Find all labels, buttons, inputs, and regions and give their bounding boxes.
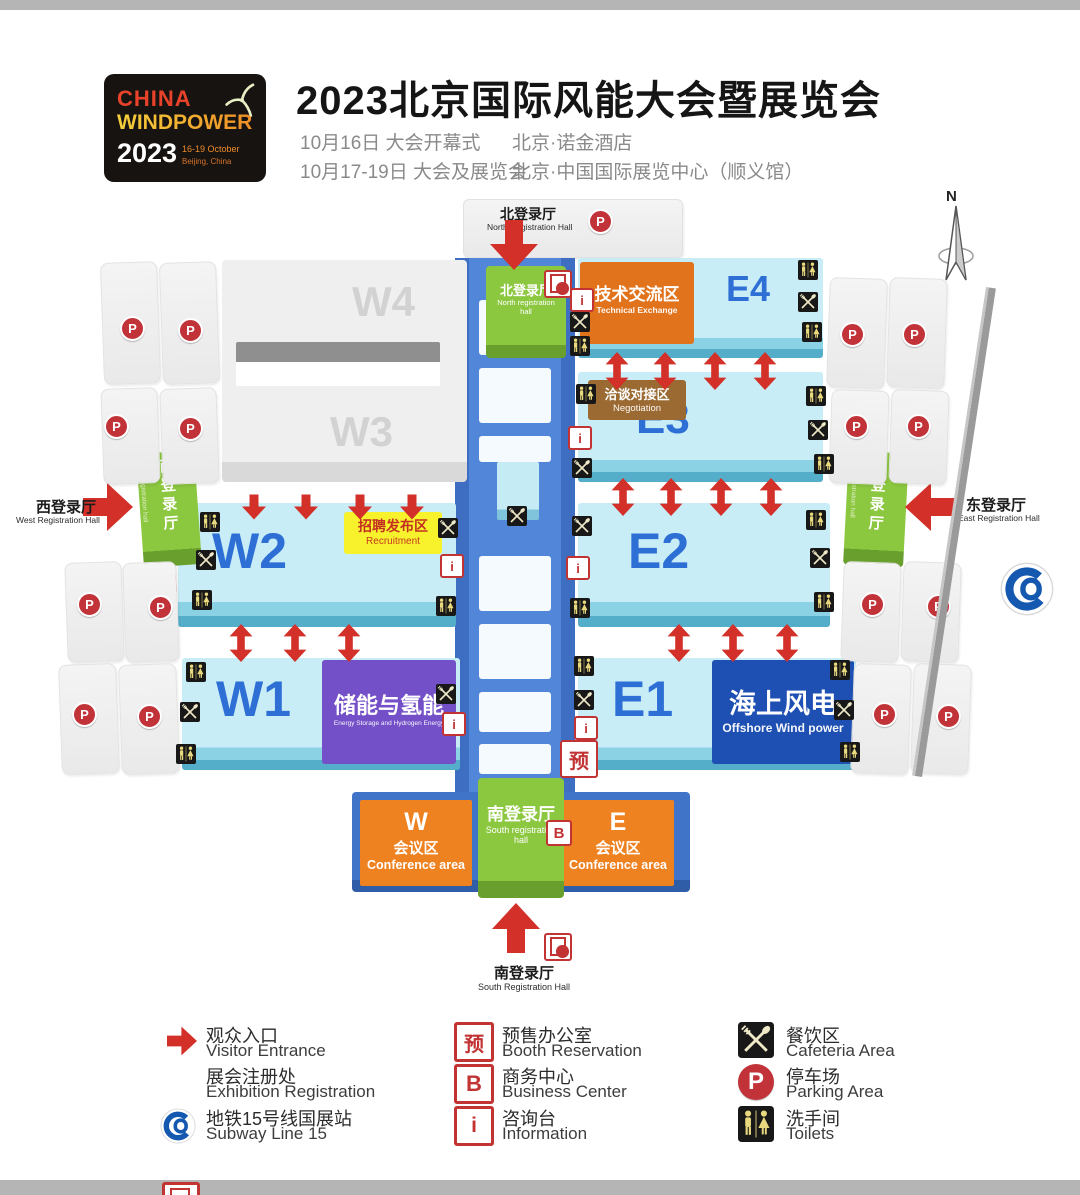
toilets-icon	[738, 1106, 774, 1142]
hall-w2-label: W2	[212, 522, 287, 580]
parking-icon: P	[860, 592, 885, 617]
conference-area-west: W 会议区 Conference area	[360, 800, 472, 886]
toilets-icon	[574, 656, 594, 676]
toilets-icon	[570, 336, 590, 356]
east-entrance-label-zh: 东登录厅	[966, 494, 1026, 515]
parking-icon: P	[178, 416, 203, 441]
parking-glyph: P	[186, 323, 195, 338]
north-entrance-arrow	[490, 220, 538, 270]
corridor-panel	[479, 436, 551, 462]
toilets-icon	[830, 660, 850, 680]
flow-arrow	[774, 624, 800, 662]
recruitment-en: Recruitment	[344, 536, 442, 547]
parking-glyph: P	[145, 709, 154, 724]
flow-arrow	[228, 624, 254, 662]
flow-arrow-down	[348, 494, 372, 520]
parking-icon: P	[844, 414, 869, 439]
flow-arrow	[658, 478, 684, 516]
business-center-icon: B	[454, 1064, 494, 1104]
hall-e1-label: E1	[612, 670, 673, 728]
conf-w-en: Conference area	[360, 858, 472, 872]
schedule-line1-event: 10月16日 大会开幕式	[300, 128, 481, 155]
top-border-bar	[0, 0, 1080, 10]
storage-hydrogen-zone: 储能与氢能 Energy Storage and Hydrogen Energy	[322, 660, 456, 764]
china-windpower-logo: CHINA WINDPOWER 2023 16-19 October Beiji…	[104, 74, 266, 182]
page-title: 2023北京国际风能大会暨展览会	[296, 68, 896, 126]
conf-w-zh: 会议区	[360, 837, 472, 858]
info-glyph: i	[578, 431, 582, 446]
information-icon: i	[440, 554, 464, 578]
booth-glyph: 预	[569, 745, 589, 774]
parking-glyph: P	[112, 419, 121, 434]
conf-e-letter: E	[562, 808, 674, 837]
conf-e-zh: 会议区	[562, 837, 674, 858]
cafeteria-icon	[738, 1022, 774, 1058]
information-icon: i	[574, 716, 598, 740]
parking-icon: P	[178, 318, 203, 343]
toilets-icon	[814, 592, 834, 612]
parking-icon: P	[588, 209, 613, 234]
legend-business-en: Business Center	[502, 1082, 627, 1102]
parking-icon: P	[120, 316, 145, 341]
info-glyph: i	[576, 561, 580, 576]
parking-icon: P	[148, 595, 173, 620]
flow-arrow	[604, 352, 630, 390]
cafeteria-icon	[574, 690, 594, 710]
conference-area-east: E 会议区 Conference area	[562, 800, 674, 886]
cafeteria-icon	[572, 458, 592, 478]
flow-arrow	[282, 624, 308, 662]
toilets-icon	[436, 596, 456, 616]
cafeteria-icon	[834, 700, 854, 720]
hall-e4-label: E4	[726, 268, 770, 310]
toilets-icon	[576, 384, 596, 404]
toilets-icon	[192, 590, 212, 610]
cafeteria-icon	[180, 702, 200, 722]
hall-w1-label: W1	[216, 670, 291, 728]
info-glyph: i	[584, 721, 588, 736]
flow-arrow-down	[294, 494, 318, 520]
registration-icon	[162, 1182, 200, 1195]
visitor-entrance-arrow-icon	[167, 1019, 197, 1063]
cafeteria-icon	[570, 312, 590, 332]
information-icon: i	[566, 556, 590, 580]
cafeteria-icon	[436, 684, 456, 704]
technical-exchange-zone: 技术交流区 Technical Exchange	[580, 262, 694, 344]
info-glyph: i	[580, 293, 584, 308]
business-glyph: B	[466, 1071, 482, 1097]
legend-parking-en: Parking Area	[786, 1082, 883, 1102]
hall-w3-label: W3	[330, 408, 393, 456]
west-entrance-label-zh: 西登录厅	[36, 496, 96, 517]
south-entrance-label-en: South Registration Hall	[478, 982, 570, 992]
schedule-line2-venue: 北京·中国国际展览中心（顺义馆）	[512, 157, 803, 184]
compass-needle-icon	[936, 204, 976, 288]
parking-glyph: P	[156, 600, 165, 615]
cafeteria-icon	[808, 420, 828, 440]
east-entrance-arrow	[905, 479, 955, 535]
information-icon: i	[570, 288, 594, 312]
south-entrance-label-zh: 南登录厅	[494, 962, 554, 983]
conf-w-letter: W	[360, 808, 472, 837]
toilets-icon	[840, 742, 860, 762]
parking-glyph: P	[596, 214, 605, 229]
subway-logo-icon	[1000, 562, 1054, 616]
toilets-icon	[806, 510, 826, 530]
parking-icon: P	[72, 702, 97, 727]
cafeteria-icon	[196, 550, 216, 570]
parking-icon: P	[77, 592, 102, 617]
flow-arrow	[610, 478, 636, 516]
info-glyph: i	[452, 717, 456, 732]
info-glyph: i	[450, 559, 454, 574]
parking-glyph: P	[868, 597, 877, 612]
toilets-icon	[200, 512, 220, 532]
information-icon: i	[454, 1106, 494, 1146]
east-entrance-label-en: East Registration Hall	[958, 513, 1040, 523]
parking-glyph: P	[848, 327, 857, 342]
storage-en: Energy Storage and Hydrogen Energy	[322, 720, 456, 727]
logo-china-text: CHINA	[117, 86, 192, 112]
parking-glyph: P	[914, 419, 923, 434]
west-entrance-label-en: West Registration Hall	[16, 515, 100, 525]
toilets-icon	[802, 322, 822, 342]
registration-icon	[544, 270, 572, 298]
logo-dates-text: 16-19 October	[182, 144, 240, 154]
compass-n-label: N	[946, 188, 957, 205]
parking-glyph: P	[128, 321, 137, 336]
parking-glyph: P	[85, 597, 94, 612]
parking-glyph: P	[748, 1068, 764, 1096]
parking-icon: P	[104, 414, 129, 439]
flow-arrow-down	[400, 494, 424, 520]
toilets-icon	[186, 662, 206, 682]
parking-icon: P	[906, 414, 931, 439]
building-slot	[236, 342, 440, 386]
parking-glyph: P	[852, 419, 861, 434]
legend-registration-en: Exhibition Registration	[206, 1082, 375, 1102]
offshore-en: Offshore Wind power	[712, 721, 854, 735]
business-center-icon: B	[546, 820, 572, 846]
legend-booth-en: Booth Reservation	[502, 1041, 642, 1061]
parking-glyph: P	[944, 709, 953, 724]
cafeteria-icon	[572, 516, 592, 536]
toilets-icon	[806, 386, 826, 406]
logo-city-text: Beijing, China	[182, 157, 231, 166]
schedule-line1-venue: 北京·诺金酒店	[512, 128, 632, 155]
hall-e2	[578, 503, 830, 627]
parking-icon: P	[872, 702, 897, 727]
north-hall-en: North registration hall	[486, 299, 566, 316]
flow-arrow	[720, 624, 746, 662]
parking-icon: P	[902, 322, 927, 347]
logo-year-text: 2023	[117, 138, 177, 169]
subway-logo-icon	[160, 1108, 196, 1144]
flow-arrow	[758, 478, 784, 516]
information-icon: i	[442, 712, 466, 736]
booth-reservation-icon: 预	[560, 740, 598, 778]
legend-subway-en: Subway Line 15	[206, 1124, 327, 1144]
corridor-panel	[479, 744, 551, 774]
technical-exchange-zh: 技术交流区	[580, 280, 694, 305]
parking-glyph: P	[80, 707, 89, 722]
south-entrance-arrow	[492, 898, 540, 958]
parking-icon: P	[840, 322, 865, 347]
hall-w4-label: W4	[352, 278, 415, 326]
booth-reservation-icon: 预	[454, 1022, 494, 1062]
conf-e-en: Conference area	[562, 858, 674, 872]
booth-glyph: 预	[464, 1028, 484, 1057]
corridor-panel	[479, 556, 551, 611]
toilets-icon	[798, 260, 818, 280]
business-glyph: B	[554, 825, 565, 842]
cafeteria-icon	[798, 292, 818, 312]
negotiation-en: Negotiation	[588, 403, 686, 414]
flow-arrow	[708, 478, 734, 516]
corridor-panel	[479, 624, 551, 679]
legend-visitor-en: Visitor Entrance	[206, 1041, 326, 1061]
info-glyph: i	[471, 1114, 477, 1138]
cafeteria-icon	[507, 506, 527, 526]
flow-arrow	[666, 624, 692, 662]
toilets-icon	[176, 744, 196, 764]
cafeteria-icon	[438, 518, 458, 538]
parking-icon: P	[137, 704, 162, 729]
flow-arrow	[702, 352, 728, 390]
toilets-icon	[814, 454, 834, 474]
offshore-zh: 海上风电	[712, 682, 854, 721]
registration-icon	[544, 933, 572, 961]
cafeteria-icon	[810, 548, 830, 568]
parking-glyph: P	[880, 707, 889, 722]
technical-exchange-en: Technical Exchange	[580, 305, 694, 315]
schedule-line2-event: 10月17-19日 大会及展览会	[300, 157, 527, 184]
parking-icon: P	[738, 1064, 774, 1100]
exhibition-map-page: CHINA WINDPOWER 2023 16-19 October Beiji…	[0, 0, 1080, 1195]
parking-glyph: P	[910, 327, 919, 342]
parking-icon: P	[936, 704, 961, 729]
hall-e2-label: E2	[628, 522, 689, 580]
flow-arrow-down	[242, 494, 266, 520]
legend-toilets-en: Toilets	[786, 1124, 834, 1144]
logo-windpower-text: WINDPOWER	[117, 111, 252, 135]
flow-arrow	[336, 624, 362, 662]
legend-information-en: Information	[502, 1124, 587, 1144]
toilets-icon	[570, 598, 590, 618]
flow-arrow	[652, 352, 678, 390]
legend-cafeteria-en: Cafeteria Area	[786, 1041, 895, 1061]
flow-arrow	[752, 352, 778, 390]
corridor-panel	[479, 692, 551, 732]
parking-glyph: P	[186, 421, 195, 436]
corridor-panel	[479, 368, 551, 423]
information-icon: i	[568, 426, 592, 450]
